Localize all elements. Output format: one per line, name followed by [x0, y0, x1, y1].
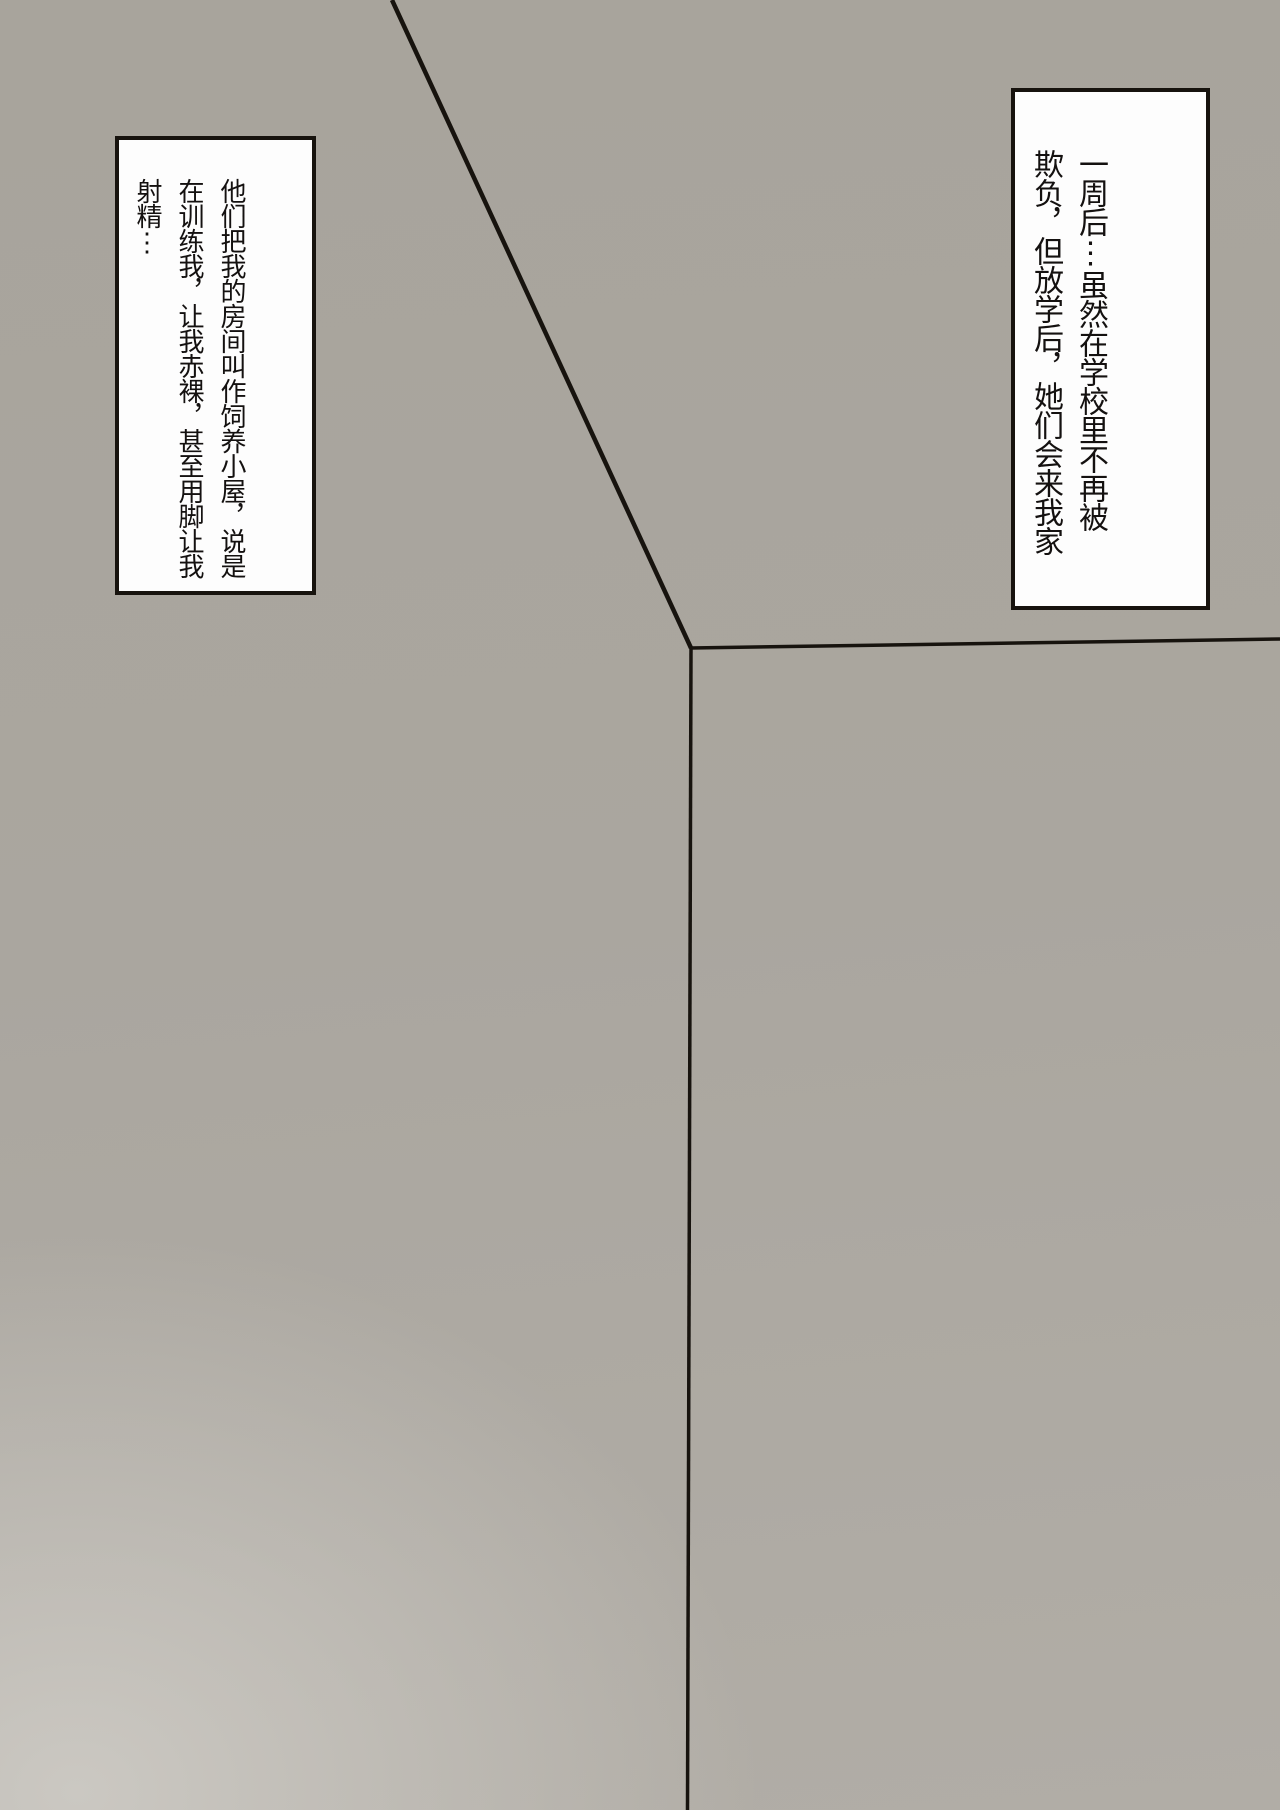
comic-page: 一周后⋮虽然在学校里不再被 欺负，但放学后，她们会来我家 他们把我的房间叫作饲养…: [0, 0, 1280, 1810]
wall-corner-vertical-line: [688, 648, 692, 1810]
narration-text-right: 一周后⋮虽然在学校里不再被 欺负，但放学后，她们会来我家: [1023, 149, 1113, 598]
narration-text-left: 他们把我的房间叫作饲养小屋，说是 在训练我，让我赤裸，甚至用脚让我 射精⋮: [127, 178, 253, 583]
narration-box-right: 一周后⋮虽然在学校里不再被 欺负，但放学后，她们会来我家: [1011, 88, 1210, 610]
narration-box-left: 他们把我的房间叫作饲养小屋，说是 在训练我，让我赤裸，甚至用脚让我 射精⋮: [115, 136, 316, 595]
wall-edge-diagonal-line: [392, 0, 691, 648]
wall-edge-horizontal-line: [691, 639, 1280, 648]
